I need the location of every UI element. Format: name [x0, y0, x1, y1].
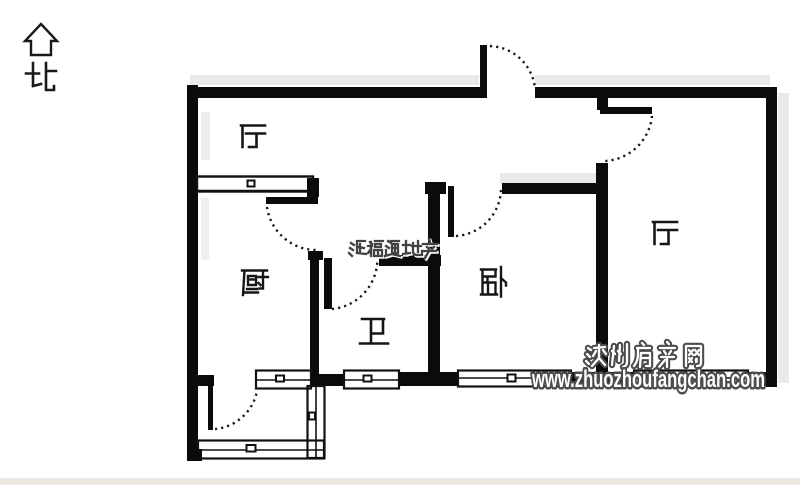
svg-text:www.zhuozhoufangchan.com: www.zhuozhoufangchan.com: [531, 366, 765, 393]
